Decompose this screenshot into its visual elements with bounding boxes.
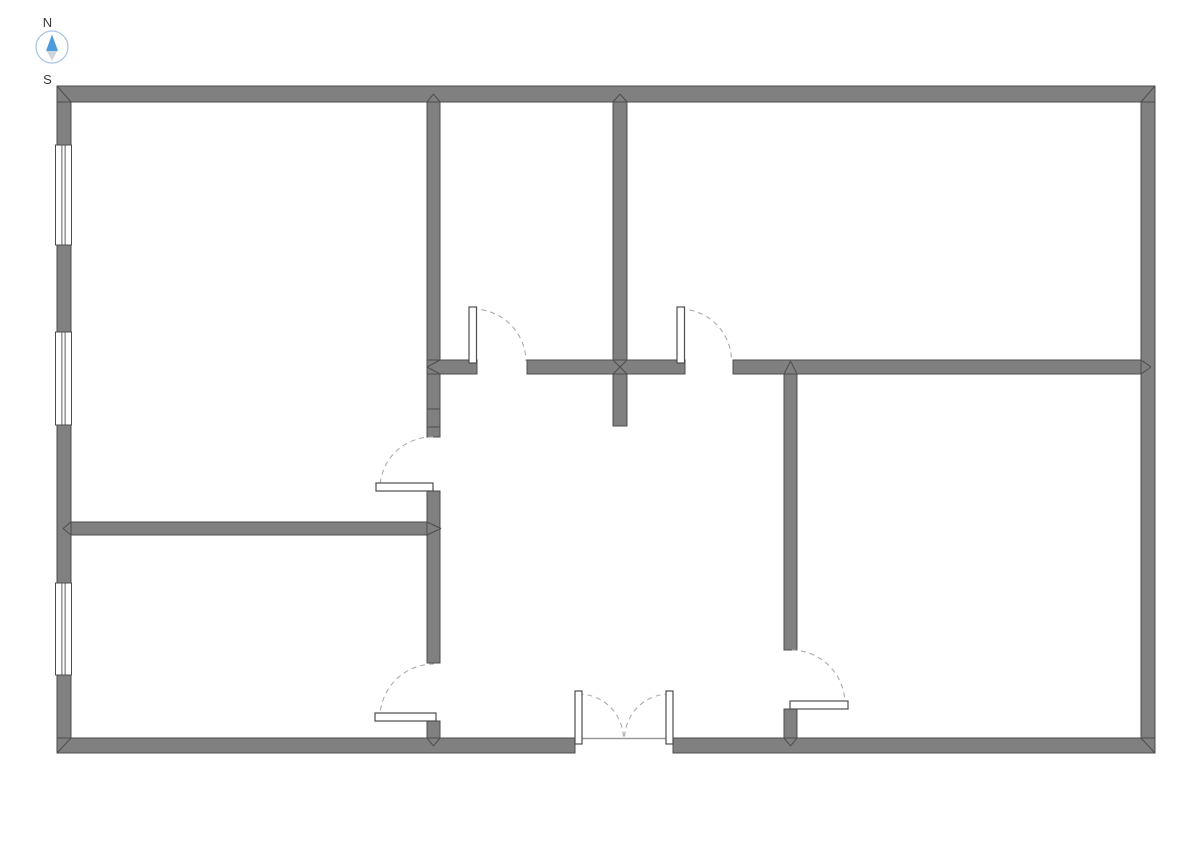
door-bottom-right-room-swing-arc — [792, 650, 845, 704]
wall-outer-top — [57, 86, 1155, 102]
door-bottom-left-room-swing-arc — [380, 664, 434, 715]
door-bottom-left-room-leaf — [375, 713, 436, 721]
door-left-room-swing-arc — [380, 437, 433, 486]
door-top-middle-room-swing-arc — [473, 309, 527, 361]
door-top-right-room-swing-arc — [681, 309, 732, 361]
wall-hleft-partition — [71, 522, 427, 535]
window-3-frame — [56, 583, 72, 675]
wall-v3-upper — [784, 360, 797, 650]
door-bottom-right-room-leaf — [790, 701, 848, 709]
wall-v1-lower — [427, 491, 440, 663]
compass: N S — [36, 15, 68, 87]
window-1-frame — [56, 145, 72, 245]
entry-double-door-right-leaf — [666, 691, 673, 744]
wall-v1-mid — [427, 374, 440, 437]
wall-outer-bottom-west — [57, 738, 575, 753]
wall-v2-partition — [613, 100, 627, 426]
wall-outer-right — [1141, 86, 1155, 753]
wall-hmid-center — [527, 360, 685, 374]
floorplan-svg: N S — [0, 0, 1190, 842]
entry-double-door-left-swing-arc — [579, 694, 624, 738]
wall-hmid-east — [733, 360, 1141, 374]
floorplan-page: N S — [0, 0, 1190, 842]
door-left-room-leaf — [376, 483, 433, 491]
compass-label-south: S — [43, 72, 52, 87]
door-top-middle-room-leaf — [469, 307, 477, 363]
window-2-frame — [56, 332, 72, 425]
wall-v1-upper — [427, 100, 440, 360]
door-top-right-room-leaf — [677, 307, 685, 363]
entry-double-door-right-swing-arc — [625, 694, 670, 738]
entry-double-door-left-leaf — [575, 691, 582, 744]
compass-label-north: N — [43, 15, 52, 30]
wall-v3-south-stub — [784, 709, 797, 739]
wall-outer-bottom-east — [673, 738, 1155, 753]
wall-v1-south-stub — [427, 721, 440, 739]
floorplan-geometry — [56, 86, 1156, 753]
